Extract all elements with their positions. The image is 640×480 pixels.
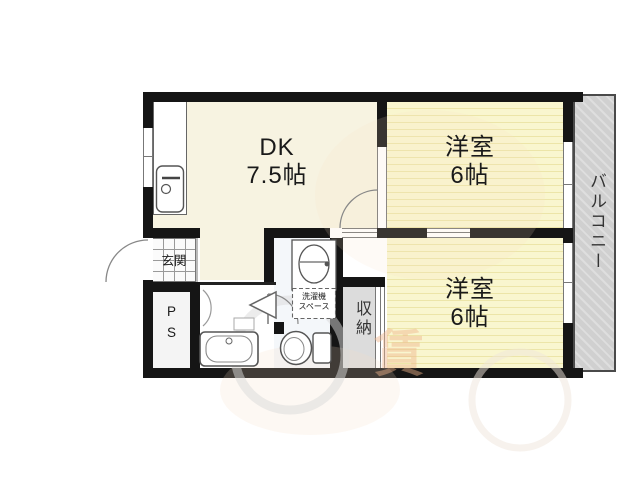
laundry-line1: 洗濯機 <box>302 292 326 302</box>
bathtub-faucet <box>226 338 232 344</box>
entrance-label: 玄関 <box>150 250 198 269</box>
dk-label: DK 7.5帖 <box>195 134 359 191</box>
bedroom-top-label: 洋室 6帖 <box>400 134 540 191</box>
pipe-space-label: P S <box>153 302 190 344</box>
watermark-circle <box>472 352 568 448</box>
bedroom-bottom-label: 洋室 6帖 <box>400 276 540 333</box>
ps-line1: P <box>167 302 176 323</box>
bedroom-top-name: 洋室 <box>445 134 495 162</box>
laundry-space-label: 洗濯機 スペース <box>292 292 336 313</box>
storage-label: 収納 <box>349 300 373 338</box>
bedroom-bottom-size: 6帖 <box>450 304 489 332</box>
dk-name: DK <box>259 134 294 162</box>
bathtub <box>200 332 258 366</box>
toilet-bowl <box>281 332 312 365</box>
dk-size: 7.5帖 <box>246 162 307 190</box>
balcony-label: バルコニー <box>584 172 609 272</box>
shower-screen-arc <box>203 290 211 326</box>
bedroom-bottom-name: 洋室 <box>445 276 495 304</box>
bedroom-top-size: 6帖 <box>450 162 489 190</box>
bath-step <box>234 318 254 330</box>
washbasin-bowl <box>299 245 329 283</box>
toilet-tank <box>313 333 331 363</box>
fixtures-overlay <box>0 0 640 480</box>
laundry-line2: スペース <box>298 302 329 312</box>
ps-line2: S <box>167 323 176 344</box>
washbasin-faucet <box>325 262 330 267</box>
floor-plan: 賃 DK 7.5帖 洋室 6帖 洋室 6帖 バルコニー 収納 玄関 P S 洗濯… <box>0 0 640 480</box>
entry-door-arc <box>106 240 148 282</box>
